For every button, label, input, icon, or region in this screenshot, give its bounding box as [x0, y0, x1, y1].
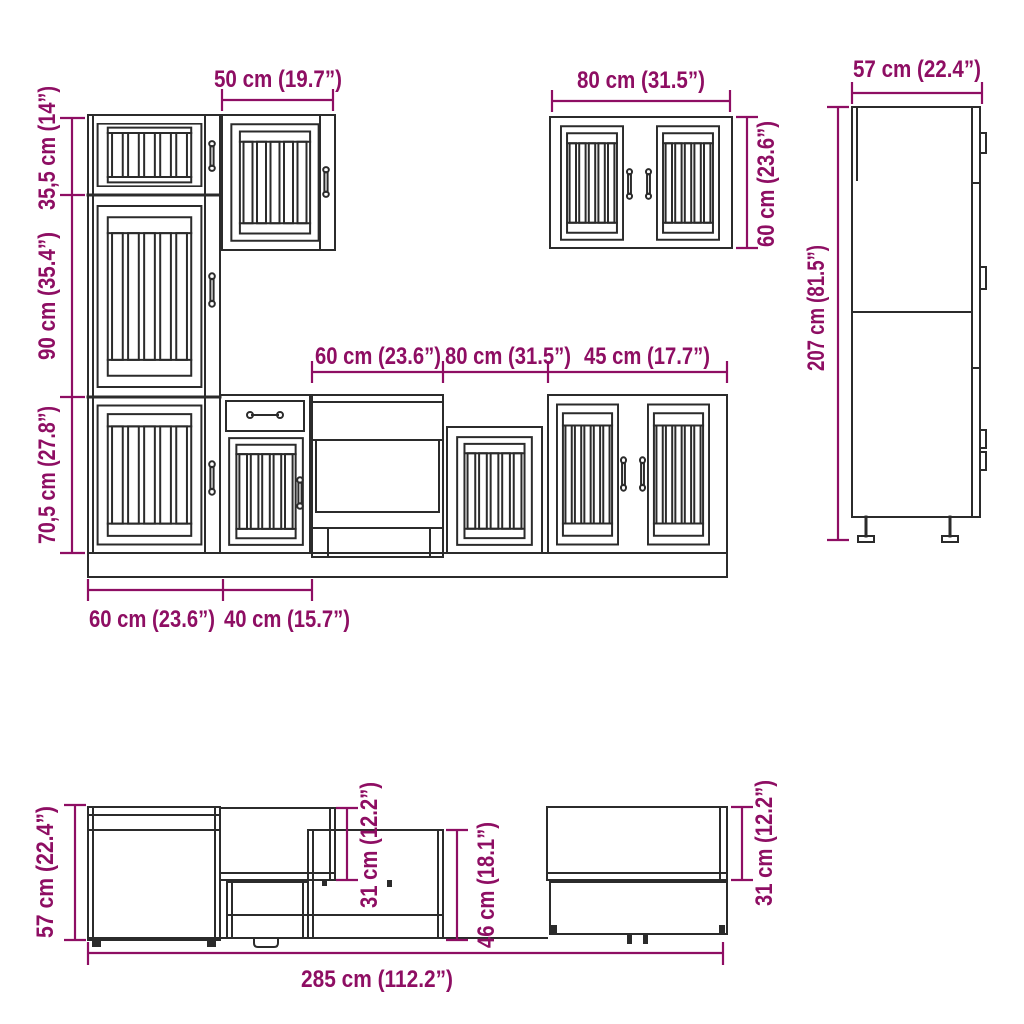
dim-label-open-60: 60 cm (23.6”) — [315, 343, 441, 370]
corner-bracket — [551, 925, 557, 933]
base-unit-side-view — [88, 807, 220, 947]
dim-line-57-top — [852, 82, 982, 104]
dim-label-dd-45: 45 cm (17.7”) — [584, 343, 710, 370]
dim-label-depth-57: 57 cm (22.4”) — [32, 806, 59, 938]
door-handle — [297, 477, 303, 509]
door-handle — [646, 169, 651, 199]
dim-label-height-705: 70,5 cm (27.8”) — [34, 406, 61, 544]
tall-cabinet-side-view — [852, 107, 986, 542]
dim-label-height-355: 35,5 cm (14”) — [34, 86, 61, 210]
adjustable-feet — [858, 517, 958, 542]
base-cabinet-40-door — [229, 438, 303, 545]
dim-label-46: 46 cm (18.1”) — [473, 822, 500, 948]
corner-bracket — [719, 925, 725, 933]
foot — [207, 940, 216, 947]
dim-label-wall-50: 50 cm (19.7”) — [214, 66, 342, 93]
dim-label-total-285: 285 cm (112.2”) — [301, 966, 453, 993]
base-cabinet-single-door — [447, 427, 542, 553]
dim-line-31-left — [336, 808, 358, 880]
peg — [643, 934, 648, 944]
wall-cabinet-50 — [222, 115, 335, 250]
dim-label-tall-width-57: 57 cm (22.4”) — [853, 56, 981, 83]
dim-line-left-heights — [60, 118, 85, 553]
door-handle — [323, 167, 329, 197]
tall-larder-unit — [88, 115, 220, 553]
wall-unit-side-right — [547, 807, 727, 880]
kitchen-dimension-diagram-page: 50 cm (19.7”) 80 cm (31.5”) 57 cm (22.4”… — [0, 0, 1024, 1024]
wall-cabinet-50-door — [231, 124, 318, 240]
open-appliance-cabinet-60 — [312, 395, 443, 557]
door-handle — [209, 141, 215, 171]
dim-label-sink-80: 80 cm (31.5”) — [445, 343, 571, 370]
wall-cabinet-80-right-door — [657, 126, 719, 240]
dim-label-wall-height-60: 60 cm (23.6”) — [753, 121, 780, 247]
larder-top-door — [98, 124, 202, 187]
dim-label-tall-height-207: 207 cm (81.5”) — [803, 245, 830, 371]
dim-label-base-40: 40 cm (15.7”) — [224, 606, 350, 633]
base-panel-side-right — [550, 882, 727, 944]
door-handle — [640, 457, 645, 490]
dim-label-height-90: 90 cm (35.4”) — [34, 232, 61, 360]
peg — [322, 880, 327, 886]
single-door — [457, 437, 532, 545]
base-cabinet-40 — [220, 395, 310, 553]
larder-bottom-door — [98, 406, 202, 545]
dim-line-bottom-widths — [88, 579, 312, 601]
wall-cabinet-80-left-door — [561, 126, 623, 240]
kitchen-dimension-diagram: 50 cm (19.7”) 80 cm (31.5”) 57 cm (22.4”… — [0, 0, 1024, 1024]
dim-line-46 — [446, 830, 468, 940]
wall-cabinet-80 — [550, 117, 732, 248]
dim-label-base-60: 60 cm (23.6”) — [89, 606, 215, 633]
dim-line-31-right — [731, 807, 753, 880]
base-cabinet-double-door — [548, 395, 727, 553]
door-handle — [209, 461, 215, 494]
dim-label-31-left: 31 cm (12.2”) — [356, 782, 383, 908]
peg — [627, 934, 632, 944]
dim-line-207 — [827, 107, 849, 540]
foot — [92, 940, 101, 947]
dim-line-57-depth — [64, 805, 86, 940]
larder-middle-door — [98, 206, 202, 387]
double-left-door — [557, 405, 618, 545]
door-handle — [621, 457, 626, 490]
dim-label-wall-80: 80 cm (31.5”) — [577, 67, 705, 94]
dim-line-285 — [88, 942, 723, 965]
dim-label-31-right: 31 cm (12.2”) — [751, 780, 778, 906]
peg — [387, 880, 392, 887]
door-handle — [209, 273, 215, 306]
double-right-door — [648, 405, 709, 545]
recessed-handle — [254, 940, 278, 947]
door-handle — [627, 169, 632, 199]
